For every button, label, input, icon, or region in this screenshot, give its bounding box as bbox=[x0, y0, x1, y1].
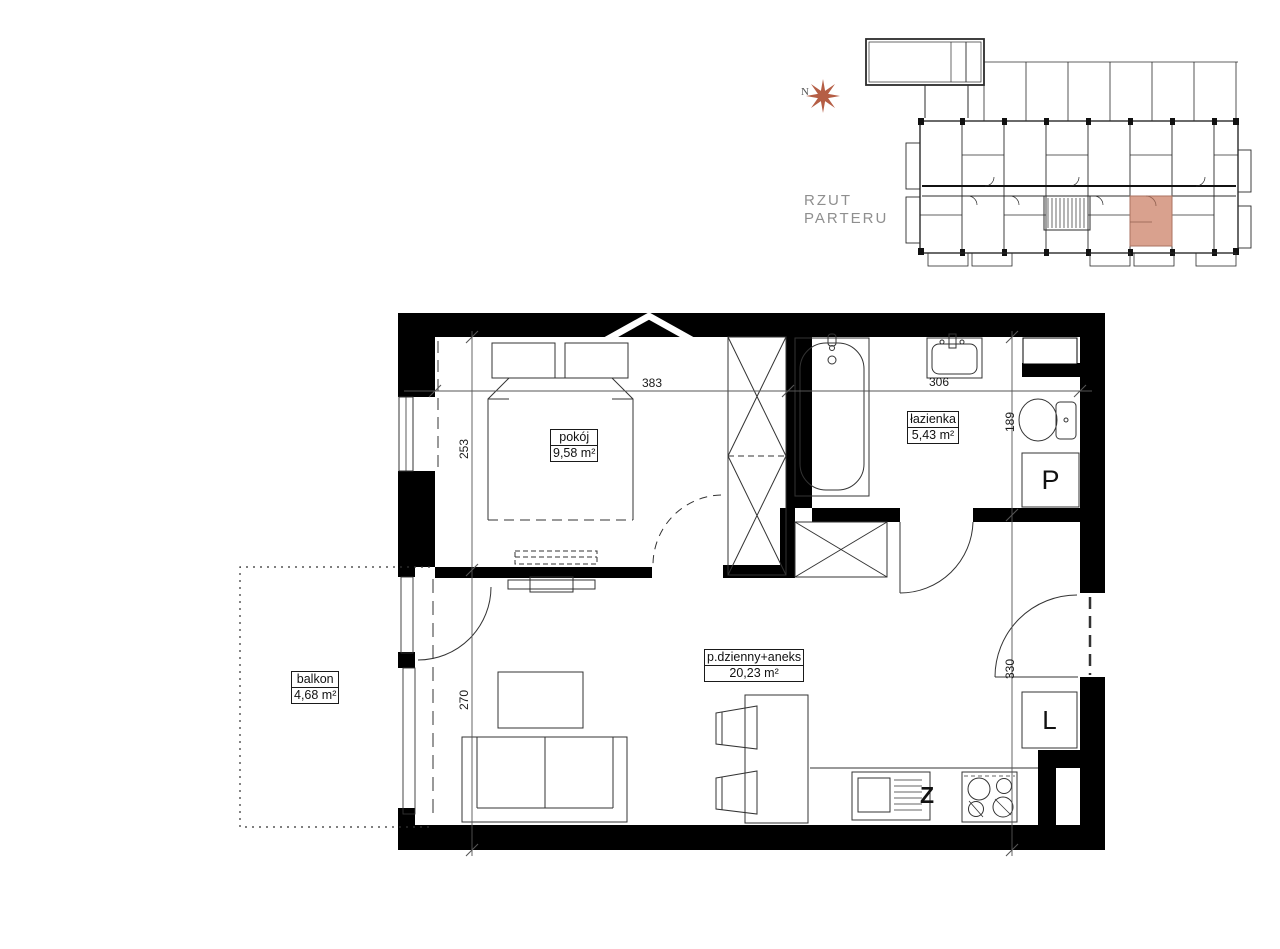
balcony-door-arc bbox=[418, 587, 491, 660]
floor-plan-drawing bbox=[0, 0, 1280, 949]
room-label-balkon: balkon 4,68 m² bbox=[291, 671, 339, 704]
room-name: pokój bbox=[551, 430, 597, 446]
hall-closet bbox=[795, 522, 887, 577]
radiator bbox=[515, 551, 597, 564]
dimension-hall-height: 330 bbox=[1003, 654, 1017, 684]
stairwell bbox=[1044, 196, 1090, 230]
room-area: 4,68 m² bbox=[292, 688, 338, 703]
room-area: 5,43 m² bbox=[908, 428, 958, 443]
room-label-pdzienny: p.dzienny+aneks 20,23 m² bbox=[704, 649, 804, 682]
coffee-table bbox=[498, 672, 583, 728]
apartment-walls bbox=[398, 313, 1105, 850]
compass-star-icon bbox=[806, 79, 840, 113]
bedroom-door-arc bbox=[653, 495, 721, 565]
highlighted-unit bbox=[1130, 196, 1172, 246]
chair bbox=[716, 771, 757, 814]
dimension-bathroom-height: 189 bbox=[1003, 407, 1017, 437]
stove bbox=[962, 772, 1017, 822]
building-balconies-top bbox=[984, 62, 1238, 121]
sink-letter: Z bbox=[915, 781, 939, 809]
building-body bbox=[920, 121, 1238, 253]
overview-caption-line2: PARTERU bbox=[804, 210, 888, 228]
pillow bbox=[492, 343, 555, 378]
room-name: balkon bbox=[292, 672, 338, 688]
bathroom-door-arc bbox=[900, 522, 973, 593]
room-name: łazienka bbox=[908, 412, 958, 428]
fridge-letter: L bbox=[1022, 692, 1077, 748]
overview-caption: RZUT PARTERU bbox=[804, 192, 888, 228]
sofa bbox=[462, 737, 627, 822]
building-overview-plan bbox=[866, 39, 1251, 266]
bathroom-door bbox=[900, 522, 973, 593]
dimension-bedroom-height: 253 bbox=[457, 434, 471, 464]
room-label-lazienka: łazienka 5,43 m² bbox=[907, 411, 959, 444]
garage-block bbox=[866, 39, 984, 118]
toilet bbox=[1019, 399, 1076, 441]
washbasin bbox=[927, 334, 982, 378]
dimension-living-height: 270 bbox=[457, 685, 471, 715]
dimension-bedroom-width: 383 bbox=[637, 376, 667, 390]
chair bbox=[716, 706, 757, 749]
dining-table bbox=[745, 695, 808, 823]
pillow bbox=[565, 343, 628, 378]
washer-letter: P bbox=[1022, 453, 1079, 507]
room-area: 20,23 m² bbox=[705, 666, 803, 681]
utility-shaft bbox=[1023, 338, 1077, 364]
room-name: p.dzienny+aneks bbox=[705, 650, 803, 666]
room-label-pokoj: pokój 9,58 m² bbox=[550, 429, 598, 462]
north-label: N bbox=[801, 86, 809, 98]
tv-stand bbox=[508, 577, 595, 592]
overview-caption-line1: RZUT bbox=[804, 192, 888, 210]
dimension-lines bbox=[404, 331, 1092, 856]
wardrobe bbox=[728, 337, 786, 575]
dimension-bathroom-width: 306 bbox=[924, 375, 954, 389]
building-balconies-bottom bbox=[906, 143, 1251, 266]
room-area: 9,58 m² bbox=[551, 446, 597, 461]
floor-plan-page: N RZUT PARTERU pokój 9,58 m² łazienka 5,… bbox=[0, 0, 1280, 949]
